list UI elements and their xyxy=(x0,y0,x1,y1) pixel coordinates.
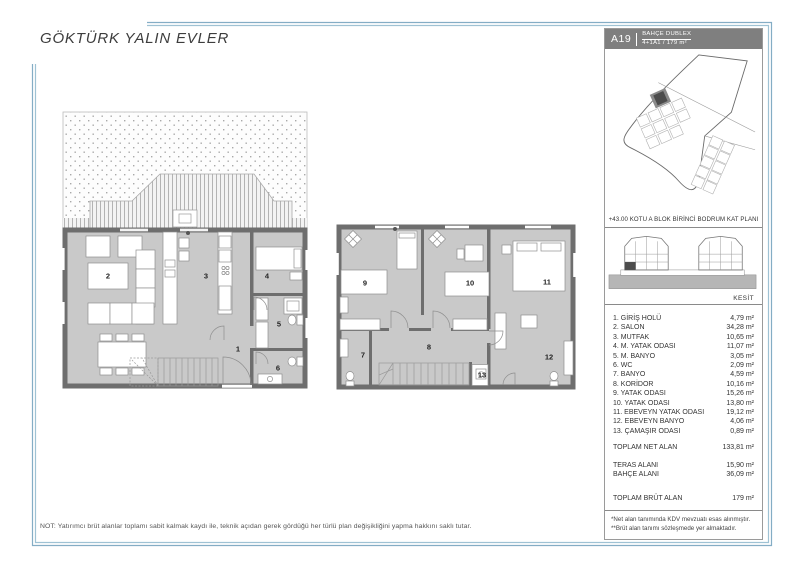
room-area: 0,89 m² xyxy=(730,427,754,436)
room-area: 4,06 m² xyxy=(730,417,754,426)
unit-info-card: A19 BAHÇE DUBLEX 4+1A1 / 179 m² +43.00 K… xyxy=(604,28,763,540)
room-row: 5. M. BANYO3,05 m² xyxy=(613,352,754,361)
room-row: 2. SALON34,28 m² xyxy=(613,323,754,332)
room-row: 8. KORİDOR10,16 m² xyxy=(613,380,754,389)
footnote-gross: **Brüt alan tanımı sözleşmede yer almakt… xyxy=(611,524,756,534)
unit-name: BAHÇE DUBLEX xyxy=(642,31,691,40)
room-name: 2. SALON xyxy=(613,323,645,332)
section-label: KESİT xyxy=(605,295,762,305)
room-number-label: 8 xyxy=(427,343,431,352)
room-number-label: 4 xyxy=(265,272,269,281)
room-area: 2,09 m² xyxy=(730,361,754,370)
total-net-row: TOPLAM NET ALAN 133,81 m² xyxy=(613,443,754,452)
terrace-area-row: TERAS ALANI 15,90 m² xyxy=(613,461,754,470)
room-row: 6. WC2,09 m² xyxy=(613,361,754,370)
ground-floor-plan-drawing xyxy=(60,110,310,391)
room-name: 7. BANYO xyxy=(613,370,645,379)
room-row: 4. M. YATAK ODASI11,07 m² xyxy=(613,342,754,351)
footnotes: *Net alan tanımında KDV mevzuatı esas al… xyxy=(605,510,762,539)
room-name: 4. M. YATAK ODASI xyxy=(613,342,676,351)
room-name: 11. EBEVEYN YATAK ODASI xyxy=(613,408,704,417)
unit-card-header: A19 BAHÇE DUBLEX 4+1A1 / 179 m² xyxy=(605,29,762,49)
room-row: 7. BANYO4,59 m² xyxy=(613,370,754,379)
room-area: 13,80 m² xyxy=(726,399,754,408)
unit-spec: 4+1A1 / 179 m² xyxy=(642,40,691,47)
highlighted-unit-section xyxy=(625,262,636,270)
unit-code: A19 xyxy=(611,33,631,45)
room-row: 12. EBEVEYN BANYO4,06 m² xyxy=(613,417,754,426)
room-row: 3. MUTFAK10,65 m² xyxy=(613,333,754,342)
column-marker xyxy=(186,231,190,235)
room-number-label: 13 xyxy=(478,371,486,380)
ground-floor-plan: 123456 xyxy=(60,110,310,391)
room-row: 9. YATAK ODASI15,26 m² xyxy=(613,389,754,398)
room-name: 6. WC xyxy=(613,361,632,370)
room-number-label: 10 xyxy=(466,279,474,288)
room-area: 10,16 m² xyxy=(726,380,754,389)
room-name: 9. YATAK ODASI xyxy=(613,389,666,398)
room-name: 8. KORİDOR xyxy=(613,380,653,389)
basement-floor-plan: 78910111213 xyxy=(335,223,577,391)
site-plan-drawing xyxy=(605,49,762,215)
room-area-list: 1. GİRİŞ HOLÜ4,79 m²2. SALON34,28 m²3. M… xyxy=(605,305,762,436)
room-name: 3. MUTFAK xyxy=(613,333,649,342)
room-area: 10,65 m² xyxy=(726,333,754,342)
room-name: 10. YATAK ODASI xyxy=(613,399,670,408)
room-number-label: 5 xyxy=(277,320,281,329)
room-number-label: 11 xyxy=(543,278,551,287)
room-name: 1. GİRİŞ HOLÜ xyxy=(613,314,661,323)
room-number-label: 2 xyxy=(106,272,110,281)
room-name: 5. M. BANYO xyxy=(613,352,655,361)
footnote-net: *Net alan tanımında KDV mevzuatı esas al… xyxy=(611,515,756,525)
section-drawing xyxy=(605,233,762,295)
room-area: 11,07 m² xyxy=(727,342,754,351)
page-title: GÖKTÜRK YALIN EVLER xyxy=(40,30,229,47)
basement-floor-plan-drawing xyxy=(335,223,577,391)
disclaimer-note: NOT: Yatırımcı brüt alanlar toplamı sabi… xyxy=(40,523,495,530)
header-divider xyxy=(636,33,637,46)
room-row: 13. ÇAMAŞIR ODASI0,89 m² xyxy=(613,427,754,436)
garden-area-row: BAHÇE ALANI 36,09 m² xyxy=(613,470,754,479)
room-area: 3,05 m² xyxy=(730,352,754,361)
room-number-label: 1 xyxy=(236,345,240,354)
column-marker xyxy=(393,227,397,231)
room-number-label: 7 xyxy=(361,351,365,360)
room-area: 4,59 m² xyxy=(730,370,754,379)
room-row: 1. GİRİŞ HOLÜ4,79 m² xyxy=(613,314,754,323)
room-number-label: 9 xyxy=(363,279,367,288)
room-number-label: 12 xyxy=(545,353,553,362)
room-name: 12. EBEVEYN BANYO xyxy=(613,417,684,426)
area-totals: TOPLAM NET ALAN 133,81 m² TERAS ALANI 15… xyxy=(605,436,762,503)
room-area: 15,26 m² xyxy=(726,389,754,398)
room-row: 10. YATAK ODASI13,80 m² xyxy=(613,399,754,408)
room-number-label: 6 xyxy=(276,364,280,373)
room-area: 19,12 m² xyxy=(726,408,754,417)
room-name: 13. ÇAMAŞIR ODASI xyxy=(613,427,680,436)
room-row: 11. EBEVEYN YATAK ODASI19,12 m² xyxy=(613,408,754,417)
site-plan-caption: +43.00 KOTU A BLOK BİRİNCİ BODRUM KAT PL… xyxy=(605,215,762,228)
room-area: 4,79 m² xyxy=(730,314,754,323)
room-number-label: 3 xyxy=(204,272,208,281)
room-area: 34,28 m² xyxy=(726,323,754,332)
total-gross-row: TOPLAM BRÜT ALAN 179 m² xyxy=(613,494,754,503)
